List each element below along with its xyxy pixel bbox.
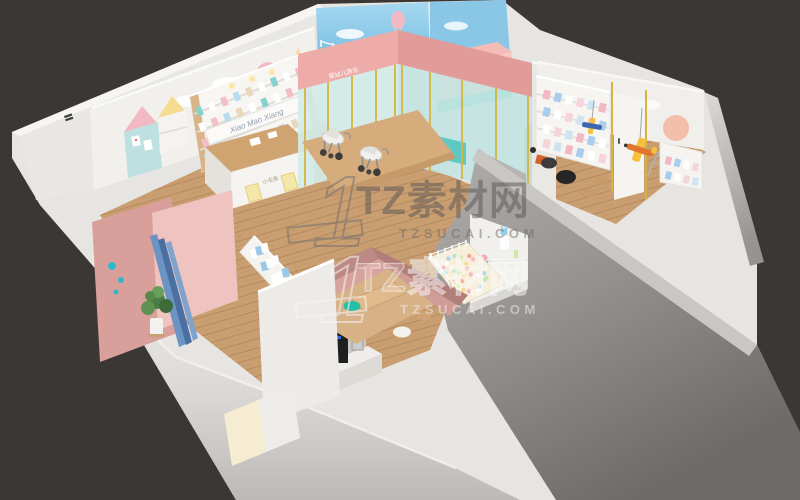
store-3d-render: Xiao Mao Xiang 小毛象 bbox=[0, 0, 800, 500]
watermark2-site: TZSUCAI.COM bbox=[400, 302, 540, 317]
screenshot-root: Xiao Mao Xiang 小毛象 bbox=[0, 0, 800, 500]
white-stool bbox=[393, 327, 411, 338]
door-handle bbox=[618, 138, 620, 144]
wall-knob bbox=[108, 262, 116, 270]
wall-knob-3 bbox=[114, 290, 119, 295]
watermark1-brand: TZ素材网 bbox=[356, 179, 530, 223]
peach-circle-decor bbox=[663, 115, 689, 141]
wall-knob-2 bbox=[118, 277, 124, 283]
watermark1-site: TZSUCAI.COM bbox=[399, 226, 539, 241]
watermark2-brand: TZ素材网 bbox=[356, 256, 530, 300]
